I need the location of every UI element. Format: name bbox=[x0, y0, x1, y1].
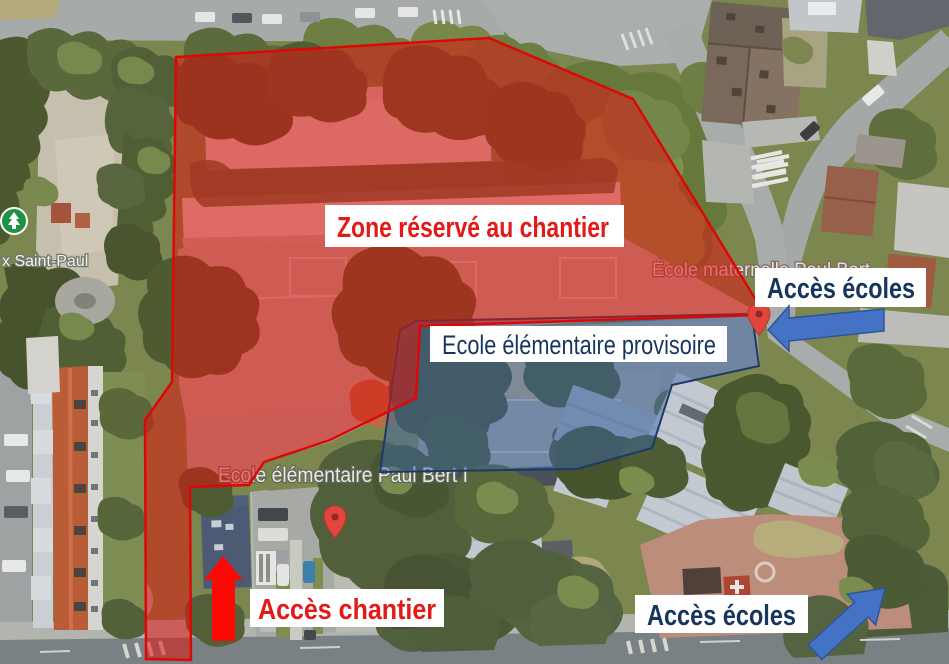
svg-text:Zone réservé au chantier: Zone réservé au chantier bbox=[337, 212, 609, 244]
svg-text:Ecole élémentaire provisoire: Ecole élémentaire provisoire bbox=[442, 330, 716, 360]
svg-text:Accès écoles: Accès écoles bbox=[767, 273, 915, 305]
svg-text:Accès chantier: Accès chantier bbox=[258, 594, 436, 626]
svg-text:Accès écoles: Accès écoles bbox=[647, 600, 796, 632]
svg-text:x Saint-Paul: x Saint-Paul bbox=[2, 253, 88, 270]
